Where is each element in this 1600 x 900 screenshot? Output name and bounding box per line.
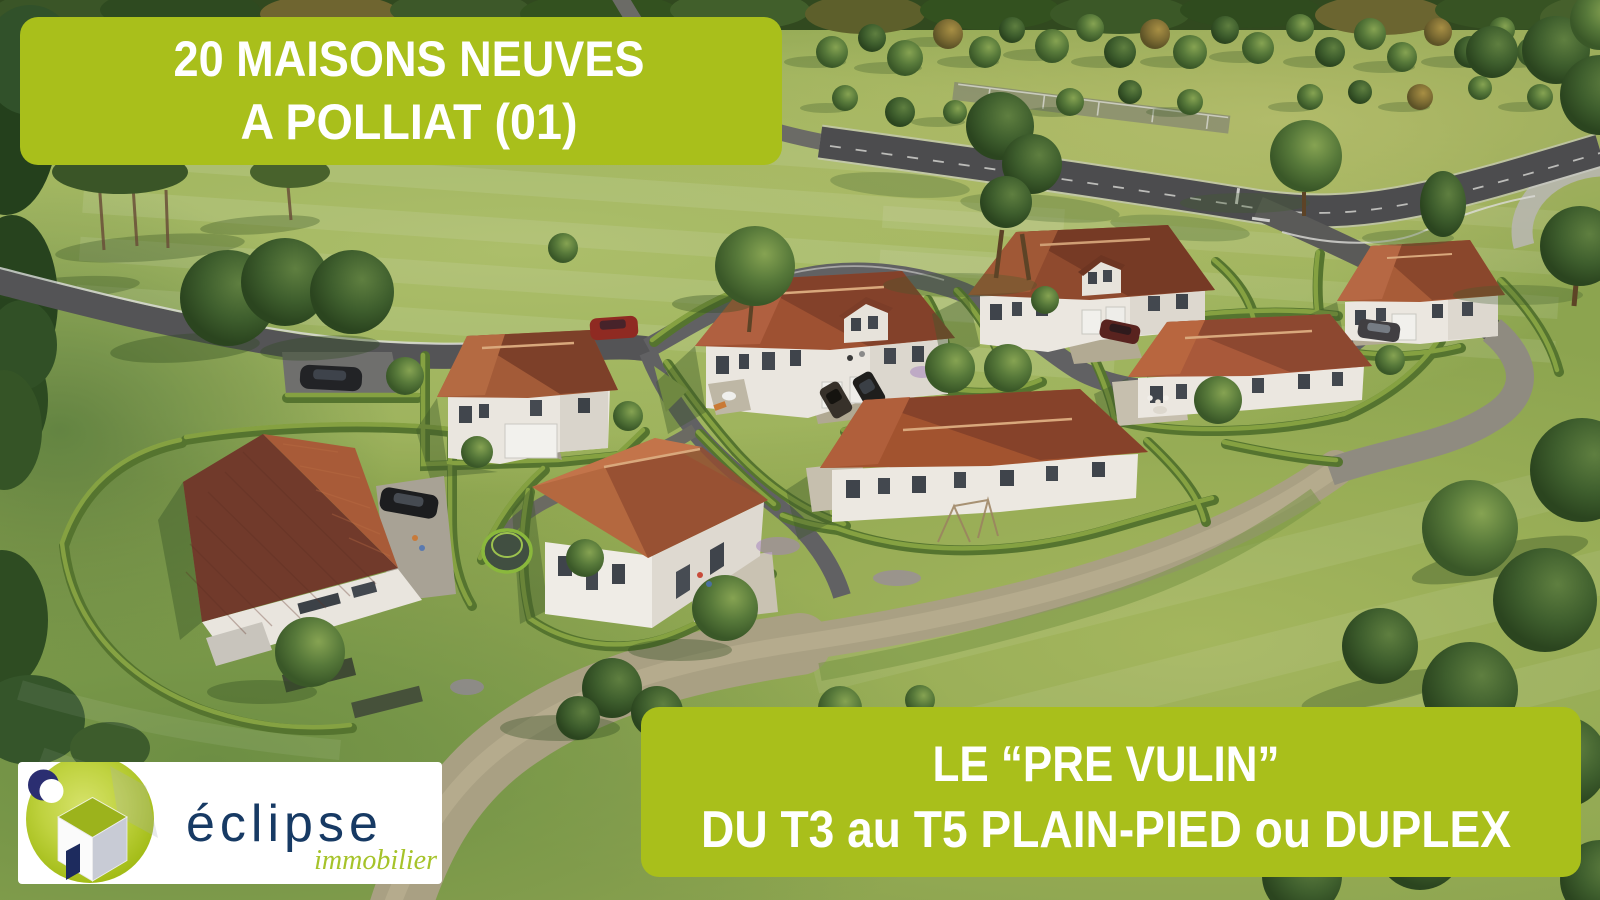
svg-text:20 MAISONS NEUVES: 20 MAISONS NEUVES <box>174 31 645 87</box>
svg-text:LE “PRE VULIN”: LE “PRE VULIN” <box>933 736 1280 792</box>
svg-text:DU T3 au T5 PLAIN-PIED ou DUPL: DU T3 au T5 PLAIN-PIED ou DUPLEX <box>701 801 1511 859</box>
svg-text:immobilier: immobilier <box>314 845 437 876</box>
svg-text:A POLLIAT (01): A POLLIAT (01) <box>241 94 578 150</box>
